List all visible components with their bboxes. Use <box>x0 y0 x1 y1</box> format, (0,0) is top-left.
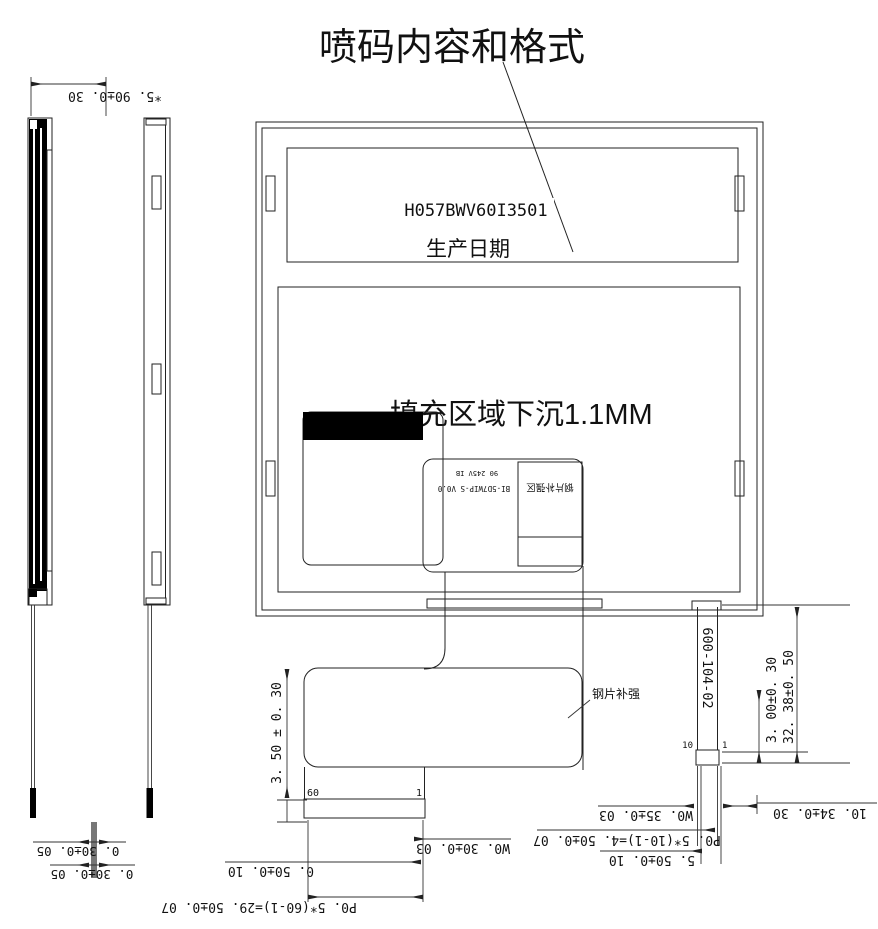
dim-thickness1-text: 0. 30±0. 05 <box>37 844 120 859</box>
side2-top-lip <box>146 119 166 125</box>
dim-pitch-text: P0. 5*(60-1)=29. 50±0. 07 <box>161 899 357 914</box>
stiffener-zone <box>518 462 582 566</box>
bottom-fpc-slot <box>427 599 602 608</box>
dim-bottom-left: W0. 30±0. 03 0. 50±0. 10 P0. 5*(60-1)=29… <box>161 820 511 914</box>
pin-1-label: 1 <box>416 788 422 799</box>
side1-layer-gap-2 <box>40 128 42 581</box>
side1-top-notch <box>30 120 37 129</box>
fpc-bond-region <box>423 459 583 572</box>
part-number-label: H057BWV60I3501 <box>404 201 547 221</box>
side2-fpc-tip <box>147 788 154 818</box>
dim-margin-text: 0. 50±0. 10 <box>228 863 314 878</box>
dim-right-vertical: 3. 00±0. 30 32. 38±0. 50 <box>722 605 850 763</box>
side1-bottom-wedge <box>29 589 37 597</box>
fpc-connector-60pin <box>304 799 425 818</box>
module-outer-frame <box>256 122 763 616</box>
fpc-steel-pad <box>304 668 582 767</box>
dim-offset-text: 10. 34±0. 30 <box>773 805 867 820</box>
dim-top-left: *5. 90±0. 30 <box>31 77 162 116</box>
pin-60-label: 60 <box>307 788 319 799</box>
side2-outline <box>144 118 170 605</box>
steel-label-leader <box>568 700 590 718</box>
fpc-marking-line1: 90 245V IB <box>456 469 498 477</box>
engineering-drawing: 喷码内容和格式 H057BWV60I3501 生产日期 填充区域下沉1.1MM … <box>0 0 878 929</box>
title-leader-line <box>503 62 573 252</box>
drawing-canvas: 喷码内容和格式 H057BWV60I3501 生产日期 填充区域下沉1.1MM … <box>0 0 878 929</box>
bottom-fpc: 60 1 钢片补强 <box>304 566 640 818</box>
production-date-label: 生产日期 <box>426 238 510 261</box>
pin-1-label-right: 1 <box>722 741 727 751</box>
steel-reinforce-label: 钢片补强 <box>592 687 640 701</box>
dim-right-outer-text: 32. 38±0. 50 <box>782 650 797 744</box>
drawing-title: 喷码内容和格式 <box>319 27 585 69</box>
dim-width-text: W0. 30±0. 03 <box>416 840 510 855</box>
side1-layer-gap-1 <box>33 124 35 584</box>
fpc-marking-line2: BI-5D7WIP-S V0.0 <box>437 484 510 493</box>
clip-left-top <box>266 176 275 211</box>
fpc-connector-10pin <box>696 750 719 765</box>
side-view-2 <box>144 118 170 818</box>
side1-backplate <box>47 150 52 571</box>
dim-top-left-text: *5. 90±0. 30 <box>68 88 162 103</box>
front-view: H057BWV60I3501 生产日期 填充区域下沉1.1MM 90 245V … <box>256 122 763 616</box>
dim-left-vertical-text: 3. 50 ± 0. 30 <box>270 682 285 784</box>
right-fpc-slot <box>692 601 721 610</box>
dim-right-width-text: W0. 35±0. 03 <box>599 807 693 822</box>
stiffener-zone-label: 钢片补强区 <box>526 481 574 493</box>
right-fpc: 600-104-02 10 1 <box>682 607 727 765</box>
side1-fpc-tip <box>30 788 36 818</box>
clip-right-top <box>735 176 744 211</box>
black-fill-bar <box>303 412 423 440</box>
fill-note: 填充区域下沉1.1MM <box>390 398 653 431</box>
side2-clip-1 <box>152 176 161 209</box>
dim-right-margin-text: 5. 50±0. 10 <box>609 852 695 867</box>
side-view-1 <box>28 118 97 878</box>
dim-thickness: 0. 30±0. 05 0. 30±0. 05 <box>33 842 135 882</box>
side2-clip-2 <box>152 364 161 394</box>
side2-bottom-lip <box>146 598 166 604</box>
dim-bottom-right: 10. 34±0. 30 W0. 35±0. 03 P0. 5*(10-1)=4… <box>533 766 877 867</box>
side2-clip-3 <box>152 552 161 585</box>
pin-10-label: 10 <box>682 741 693 751</box>
side1-black-body <box>29 119 47 591</box>
dim-right-inner-text: 3. 00±0. 30 <box>765 657 780 743</box>
clip-left-bottom <box>266 461 275 496</box>
fpc-part-number: 600-104-02 <box>699 627 715 708</box>
dim-right-pitch-text: P0. 5*(10-1)=4. 50±0. 07 <box>533 832 721 847</box>
fpc-neck-left-edge <box>424 572 445 669</box>
dim-left-vertical: 3. 50 ± 0. 30 <box>270 669 307 822</box>
dim-thickness2-text: 0. 30±0. 05 <box>51 867 134 882</box>
